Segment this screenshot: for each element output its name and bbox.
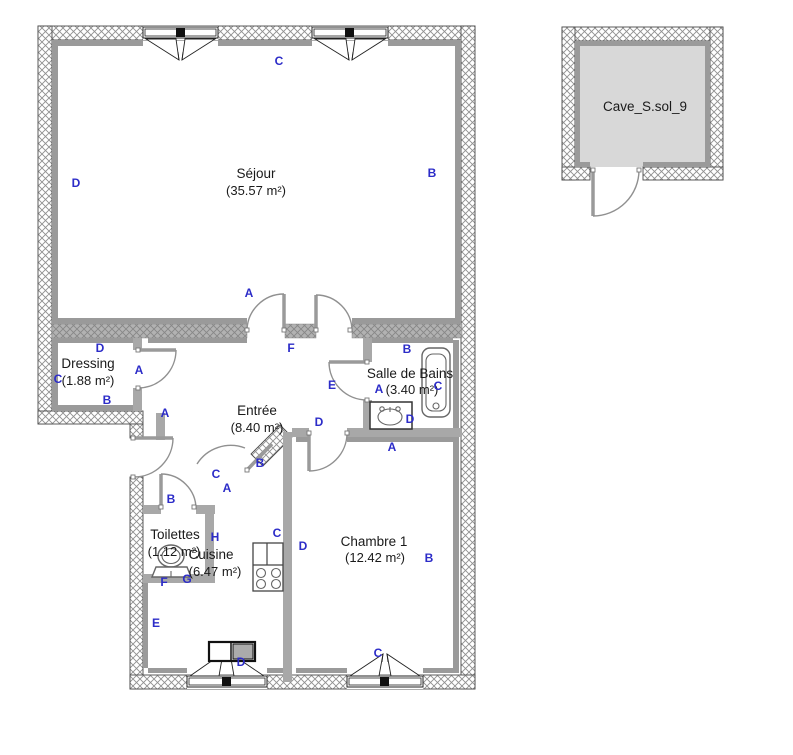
wall-label-A: A bbox=[223, 481, 232, 495]
entree-name: Entrée bbox=[237, 403, 277, 418]
cave-inner-line bbox=[575, 41, 710, 46]
wall-label-A: A bbox=[375, 382, 384, 396]
wall-west-lower-b bbox=[130, 477, 143, 689]
wall-label-H: H bbox=[211, 530, 220, 544]
wall-label-B: B bbox=[403, 342, 412, 356]
chambre-area: (12.42 m²) bbox=[345, 550, 405, 565]
toilettes-name: Toilettes bbox=[150, 527, 200, 542]
sejour-name: Séjour bbox=[236, 166, 276, 181]
wall-label-D: D bbox=[237, 655, 246, 669]
wall-label-D: D bbox=[96, 341, 105, 355]
middle-wall-left bbox=[52, 324, 247, 338]
wall-label-B: B bbox=[167, 492, 176, 506]
sejour-area: (35.57 m²) bbox=[226, 183, 286, 198]
kitchen-bedroom-wall bbox=[283, 432, 292, 682]
door-apartment-entrance bbox=[131, 436, 173, 479]
wall-label-D: D bbox=[315, 415, 324, 429]
wall-label-B: B bbox=[425, 551, 434, 565]
cave-wall-south-a bbox=[562, 167, 590, 180]
wall-label-C: C bbox=[275, 54, 284, 68]
floorplan-drawing: Séjour (35.57 m²) Dressing (1.88 m²) Ent… bbox=[0, 0, 793, 755]
kitchen-counter-stove-icon bbox=[253, 543, 283, 591]
wall-north bbox=[38, 26, 475, 40]
wall-label-B: B bbox=[256, 456, 265, 470]
wall-label-C: C bbox=[54, 372, 63, 386]
window-sejour-left bbox=[143, 26, 218, 60]
dressing-area: (1.88 m²) bbox=[62, 373, 115, 388]
door-chambre bbox=[307, 431, 349, 471]
wall-label-C: C bbox=[374, 646, 383, 660]
dressing-east-wall-b bbox=[133, 388, 142, 411]
wall-label-C: C bbox=[434, 379, 443, 393]
sink-unit-icon bbox=[209, 642, 255, 661]
window-sejour-right bbox=[312, 26, 388, 60]
cuisine-name: Cuisine bbox=[188, 547, 233, 562]
wall-label-B: B bbox=[428, 166, 437, 180]
cave-inner-line bbox=[575, 162, 590, 167]
wall-label-A: A bbox=[161, 406, 170, 420]
cave-room bbox=[562, 27, 723, 216]
sdb-area: (3.40 m²) bbox=[386, 382, 439, 397]
cave-inner-line bbox=[575, 41, 580, 167]
middle-wall-pier bbox=[285, 324, 316, 338]
middle-wall bbox=[52, 324, 462, 338]
cave-wall-west bbox=[562, 27, 575, 180]
wall-dressing-south bbox=[38, 411, 143, 424]
cave-wall-east bbox=[710, 27, 723, 180]
wall-label-G: G bbox=[182, 572, 191, 586]
wall-label-F: F bbox=[287, 341, 294, 355]
wall-east bbox=[461, 26, 475, 689]
cuisine-area: (6.47 m²) bbox=[189, 564, 242, 579]
wall-label-A: A bbox=[135, 363, 144, 377]
dressing-name: Dressing bbox=[61, 356, 114, 371]
cave-inner-line bbox=[705, 41, 710, 167]
door-toilettes bbox=[159, 474, 196, 509]
entree-area: (8.40 m²) bbox=[231, 420, 284, 435]
bedroom-north-wall-a bbox=[292, 428, 309, 437]
chambre-name: Chambre 1 bbox=[341, 534, 408, 549]
wall-label-D: D bbox=[406, 412, 415, 426]
door-sejour-double-right bbox=[314, 295, 352, 332]
wall-label-E: E bbox=[328, 378, 336, 392]
wall-label-A: A bbox=[245, 286, 254, 300]
wall-label-D: D bbox=[72, 176, 81, 190]
cave-door bbox=[591, 168, 641, 216]
bathroom-west-wall-a bbox=[363, 338, 372, 362]
wall-label-E: E bbox=[152, 616, 160, 630]
cave-inner-line bbox=[643, 162, 710, 167]
wall-label-C: C bbox=[212, 467, 221, 481]
floorplan-canvas: Séjour (35.57 m²) Dressing (1.88 m²) Ent… bbox=[0, 0, 793, 755]
cave-wall-south-b bbox=[643, 167, 723, 180]
window-chambre bbox=[347, 654, 423, 689]
wall-label-B: B bbox=[103, 393, 112, 407]
wall-label-F: F bbox=[160, 575, 167, 589]
middle-wall-right bbox=[352, 324, 462, 338]
cave-wall-north bbox=[562, 27, 723, 41]
wall-label-A: A bbox=[388, 440, 397, 454]
cave-name: Cave_S.sol_9 bbox=[603, 99, 687, 114]
wall-label-C: C bbox=[273, 526, 282, 540]
wall-label-D: D bbox=[299, 539, 308, 553]
wall-west-upper bbox=[38, 26, 52, 424]
wc-north-wall-a bbox=[143, 505, 161, 514]
